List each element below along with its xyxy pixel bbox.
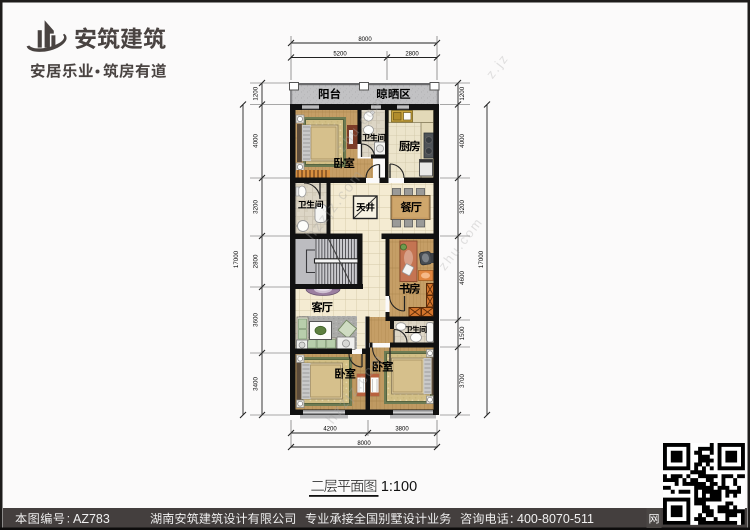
- svg-text:2800: 2800: [253, 254, 260, 268]
- svg-text:8000: 8000: [357, 441, 371, 447]
- svg-text:3800: 3800: [395, 427, 409, 433]
- svg-text:17000: 17000: [233, 250, 240, 268]
- svg-text:1200: 1200: [459, 86, 466, 100]
- svg-text:3400: 3400: [253, 377, 260, 391]
- svg-text:400-8070-511: 400-8070-511: [517, 512, 594, 526]
- svg-text:2800: 2800: [405, 52, 419, 58]
- svg-text:1500: 1500: [459, 326, 466, 340]
- svg-text:3200: 3200: [459, 200, 466, 214]
- svg-text:17000: 17000: [478, 250, 485, 268]
- svg-text:AZ783: AZ783: [73, 512, 110, 526]
- svg-text:4000: 4000: [459, 134, 466, 148]
- svg-text:5200: 5200: [333, 52, 347, 58]
- svg-text:1200: 1200: [253, 86, 260, 100]
- svg-text:3700: 3700: [459, 374, 466, 388]
- svg-text:1:100: 1:100: [381, 479, 417, 495]
- svg-text:4600: 4600: [459, 271, 466, 285]
- svg-text:3600: 3600: [253, 313, 260, 327]
- svg-text:8000: 8000: [358, 37, 372, 43]
- svg-text:3200: 3200: [253, 200, 260, 214]
- svg-text:4000: 4000: [253, 134, 260, 148]
- svg-text::: :: [67, 511, 70, 525]
